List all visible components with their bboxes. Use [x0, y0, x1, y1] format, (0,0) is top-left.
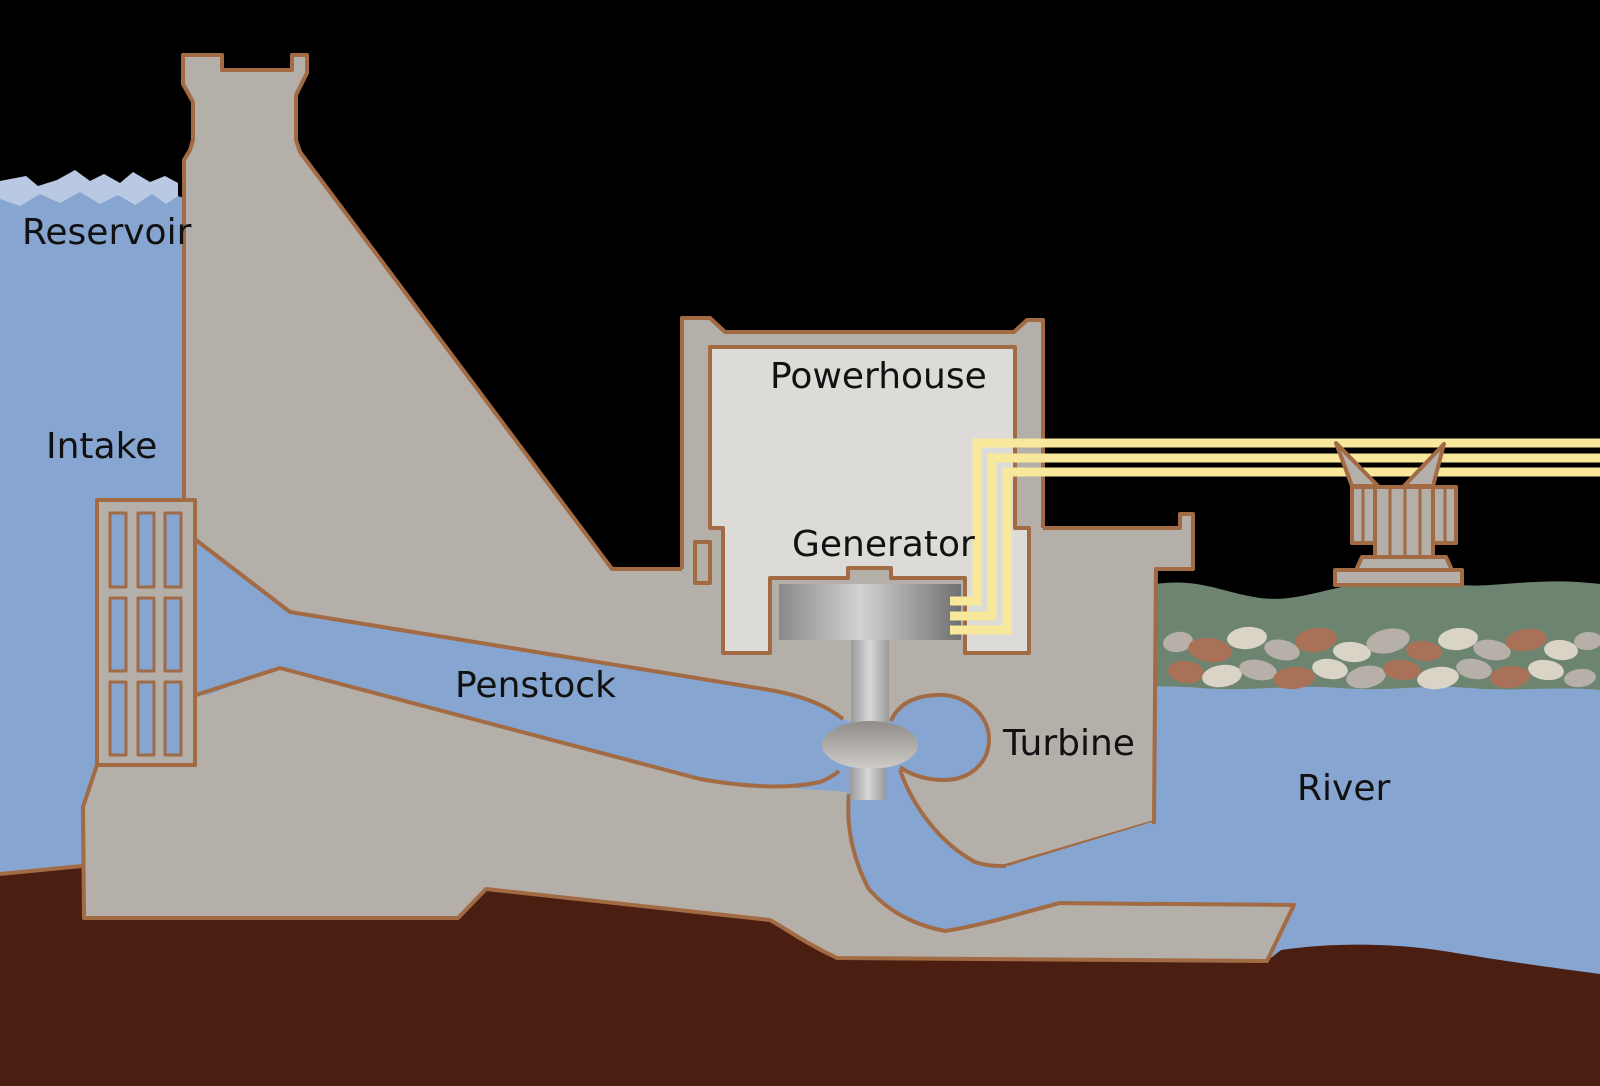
hydroelectric-dam-diagram: Reservoir Intake Penstock Powerhouse Gen… — [0, 0, 1600, 1086]
transformer-base — [1335, 570, 1462, 585]
label-powerhouse: Powerhouse — [770, 356, 987, 397]
generator-shaft — [851, 640, 889, 724]
label-river: River — [1297, 768, 1390, 809]
powerhouse-wall-pilaster — [695, 542, 710, 583]
intake-rack — [97, 500, 195, 765]
turbine-runner — [822, 721, 918, 769]
diagram-canvas: Reservoir Intake Penstock Powerhouse Gen… — [0, 0, 1600, 1086]
label-turbine: Turbine — [1002, 723, 1135, 764]
label-generator: Generator — [792, 524, 975, 565]
label-intake: Intake — [46, 426, 157, 467]
label-reservoir: Reservoir — [22, 212, 192, 253]
label-penstock: Penstock — [455, 665, 616, 706]
generator-cylinder — [779, 584, 961, 640]
turbine-hub — [850, 768, 886, 800]
